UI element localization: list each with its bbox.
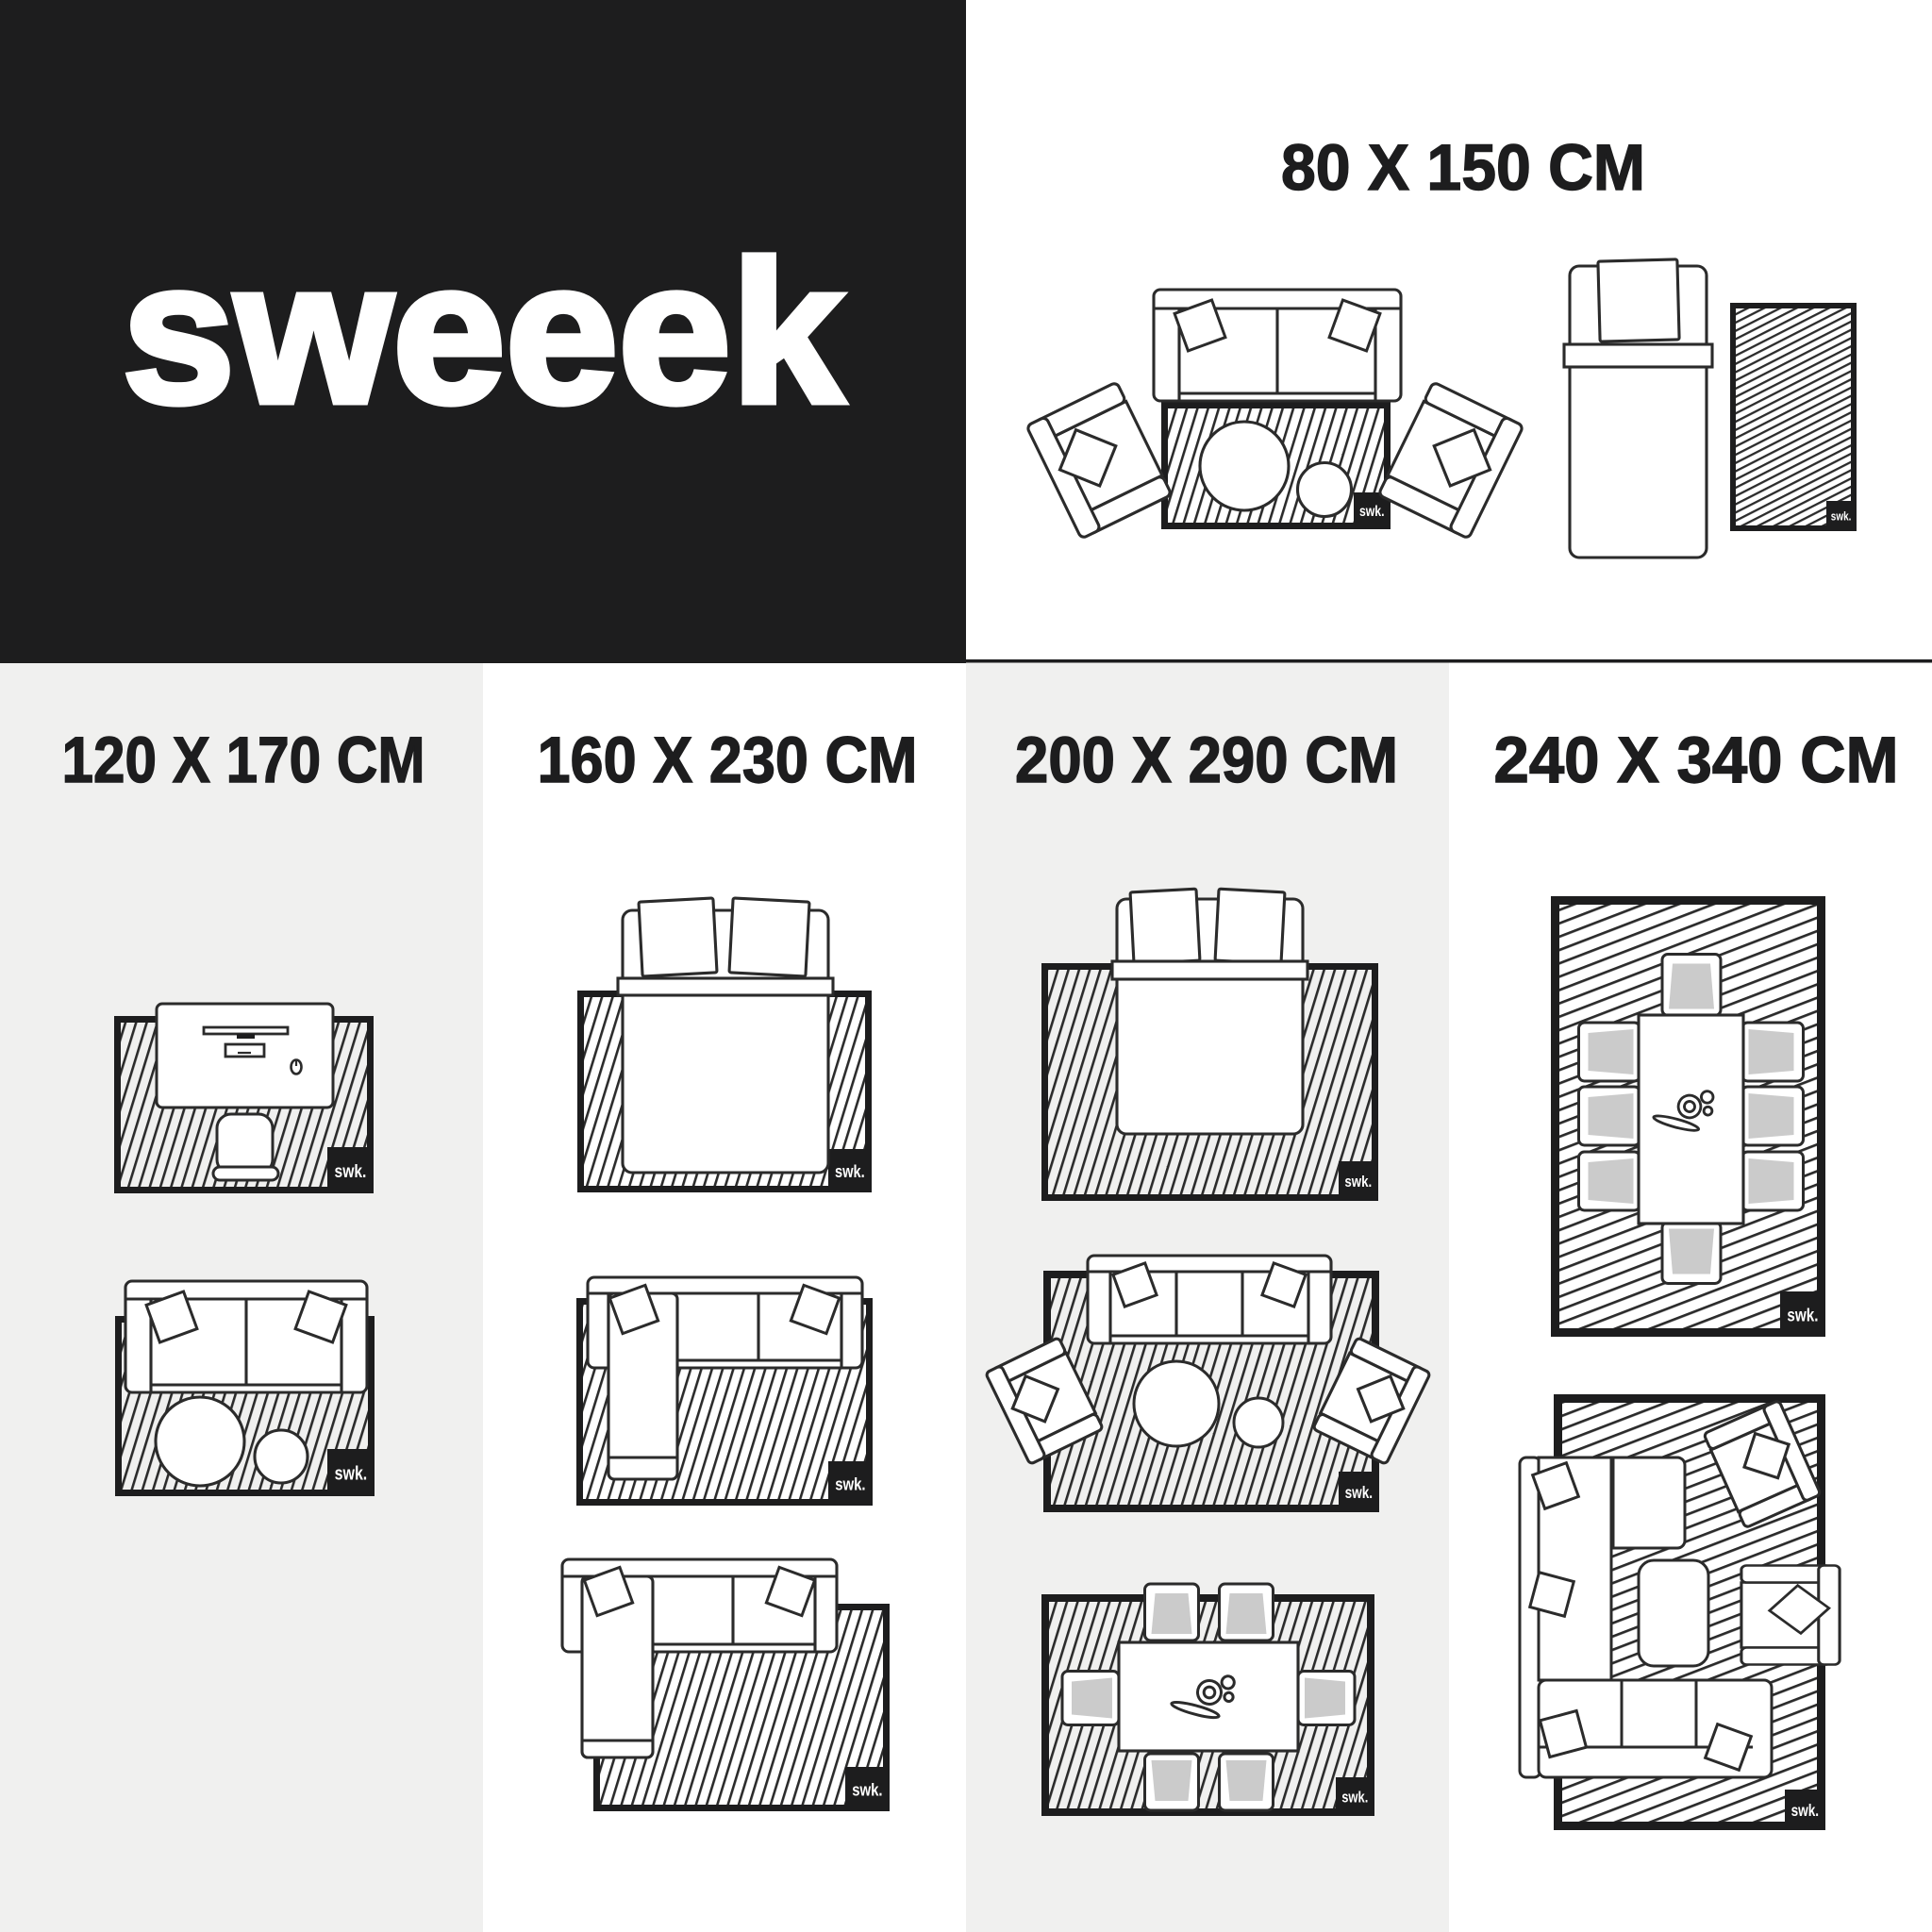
svg-text:swk.: swk. bbox=[1831, 509, 1852, 523]
svg-text:swk.: swk. bbox=[835, 1475, 865, 1495]
svg-text:swk.: swk. bbox=[1791, 1801, 1820, 1820]
svg-text:swk.: swk. bbox=[852, 1781, 882, 1801]
svg-text:swk.: swk. bbox=[1341, 1790, 1368, 1807]
svg-text:sweeek: sweeek bbox=[123, 220, 845, 445]
svg-text:swk.: swk. bbox=[1787, 1306, 1818, 1325]
svg-text:swk.: swk. bbox=[1359, 504, 1385, 520]
svg-text:80 X 150 CM: 80 X 150 CM bbox=[1281, 131, 1645, 204]
svg-text:200 X 290 CM: 200 X 290 CM bbox=[1015, 724, 1398, 796]
svg-text:swk.: swk. bbox=[1344, 1173, 1372, 1191]
svg-text:120 X 170 CM: 120 X 170 CM bbox=[62, 724, 425, 796]
svg-text:160 X 230 CM: 160 X 230 CM bbox=[538, 724, 918, 796]
svg-text:swk.: swk. bbox=[1345, 1483, 1374, 1502]
svg-text:swk.: swk. bbox=[335, 1161, 367, 1182]
svg-text:swk.: swk. bbox=[835, 1161, 865, 1181]
svg-text:swk.: swk. bbox=[335, 1464, 368, 1485]
svg-text:240 X 340 CM: 240 X 340 CM bbox=[1494, 724, 1899, 796]
